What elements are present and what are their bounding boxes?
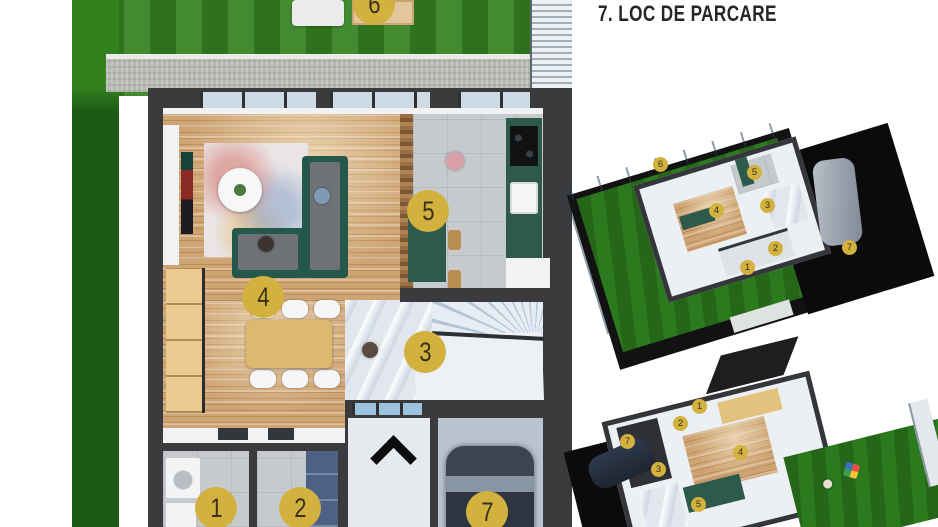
sink (510, 182, 538, 214)
iso-marker-2-number: 2 (678, 418, 683, 429)
iso-marker-5: 5 (691, 497, 706, 512)
kitchen-hall-wall (400, 288, 572, 302)
room-marker-1-number: 1 (210, 493, 222, 524)
iso-marker-5: 5 (747, 165, 762, 180)
iso-marker-1-number: 1 (697, 401, 702, 412)
iso-marker-5-number: 5 (752, 167, 757, 178)
iso-marker-1: 1 (692, 399, 707, 414)
washing-machine (166, 458, 200, 498)
room-marker-3: 3 (404, 331, 446, 373)
iso-marker-7: 7 (620, 434, 635, 449)
dining-table (246, 320, 332, 368)
iso-view-top: 6 5 4 3 2 1 7 (578, 108, 918, 358)
door-threshold (268, 428, 294, 440)
interior-wall-face (163, 428, 345, 444)
iso-view-bottom: 1 2 7 3 4 5 (578, 362, 938, 527)
iso-marker-3-number: 3 (656, 464, 661, 475)
room-marker-5-number: 5 (422, 196, 434, 227)
iso-marker-4-number: 4 (738, 447, 743, 458)
kitchen-counter-end (506, 258, 550, 288)
iso-marker-2-number: 2 (773, 243, 778, 254)
iso-marker-3-number: 3 (765, 200, 770, 211)
iso-hall-floor (639, 483, 688, 527)
room-marker-5: 5 (407, 190, 449, 232)
person (362, 342, 378, 358)
iso-marker-2: 2 (673, 416, 688, 431)
person (258, 236, 274, 252)
door-threshold (218, 428, 248, 440)
iso-top-scene (560, 80, 924, 375)
iso-marker-5-number: 5 (696, 499, 701, 510)
garden-sofa (292, 0, 344, 26)
room-marker-7-number: 7 (481, 497, 493, 527)
dining-chair (282, 370, 308, 388)
tv (181, 152, 193, 234)
iso-marker-7: 7 (842, 240, 857, 255)
interior-wall (430, 418, 438, 527)
iso-marker-3: 3 (760, 198, 775, 213)
room-marker-3-number: 3 (419, 337, 431, 368)
tv-sideboard (163, 125, 179, 265)
bathroom-fixture (166, 503, 196, 527)
bar-stool (448, 230, 461, 250)
room-marker-2: 2 (279, 487, 321, 527)
dining-chair (314, 300, 340, 318)
iso-marker-3: 3 (651, 462, 666, 477)
sofa-cushions (310, 162, 340, 270)
dining-chair (250, 370, 276, 388)
iso-marker-4: 4 (733, 445, 748, 460)
room-marker-4-number: 4 (257, 282, 269, 313)
room-marker-2-number: 2 (294, 493, 306, 524)
privacy-fence (530, 0, 572, 92)
iso-marker-1-number: 1 (745, 262, 750, 273)
entrance-door-glass (352, 403, 422, 415)
room-marker-7: 7 (466, 491, 508, 527)
dining-chair (314, 370, 340, 388)
floor-plan-page: 1 2 3 4 5 6 7 7. LOC DE PARCARE (0, 0, 938, 527)
iso-marker-1: 1 (740, 260, 755, 275)
iso-marker-4: 4 (709, 203, 724, 218)
person (314, 188, 330, 204)
room-marker-1: 1 (195, 487, 237, 527)
person (446, 152, 464, 170)
iso-marker-6-number: 6 (658, 159, 663, 170)
iso-marker-6: 6 (653, 157, 668, 172)
iso-marker-2: 2 (768, 241, 783, 256)
iso-marker-4-number: 4 (714, 205, 719, 216)
dining-chair (282, 300, 308, 318)
interior-wall (249, 443, 257, 527)
room-marker-4: 4 (242, 276, 284, 318)
dining-cabinet (166, 268, 205, 413)
room-marker-6-number: 6 (368, 0, 380, 20)
legend-item-parking: 7. LOC DE PARCARE (598, 1, 777, 27)
bar-stool (448, 270, 461, 290)
table-plant (234, 184, 246, 196)
stove (510, 126, 538, 166)
iso-marker-7-number: 7 (847, 242, 852, 253)
main-floor-plan: 1 2 3 4 5 6 7 (0, 0, 572, 527)
interior-wall (338, 443, 348, 527)
iso-marker-7-number: 7 (625, 436, 630, 447)
